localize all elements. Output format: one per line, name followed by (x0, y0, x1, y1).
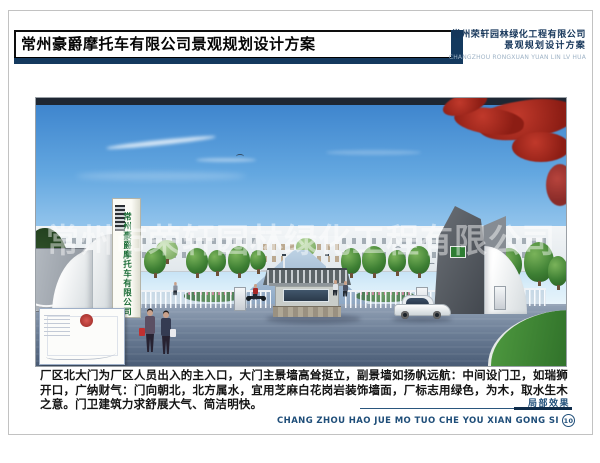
footer-pinyin: CHANG ZHOU HAO JUE MO TUO CHE YOU XIAN G… (277, 414, 575, 427)
design-board-page: 常州豪爵摩托车有限公司景观规划设计方案 常州荣轩园林绿化工程有限公司 景观规划设… (0, 0, 600, 463)
plan-legend-lines (44, 315, 70, 337)
page-number-badge: 10 (562, 414, 575, 427)
figure-head (344, 281, 348, 285)
figure-legs (162, 336, 170, 354)
white-bag (170, 329, 176, 337)
firm-name: 常州荣轩园林绿化工程有限公司 (420, 30, 586, 41)
guard-house-window (283, 289, 329, 302)
caption-rule (360, 408, 572, 409)
figure-torso (343, 285, 348, 291)
plan-road-curve (46, 345, 116, 360)
cloud (196, 158, 256, 162)
gate-pillar (234, 287, 246, 311)
footer-pinyin-text: CHANG ZHOU HAO JUE MO TUO CHE YOU XIAN G… (277, 416, 559, 426)
figure-head (334, 280, 338, 284)
gate-pillar (494, 286, 506, 310)
cloud (326, 150, 421, 155)
car-wheel (433, 311, 441, 319)
fence-left (140, 290, 271, 308)
figure-torso (173, 285, 177, 290)
car-shadow (392, 317, 452, 322)
bird-icon (236, 154, 244, 159)
figure-torso (253, 288, 258, 294)
figure-head (254, 284, 258, 288)
figure-torso (333, 284, 338, 290)
car-wheel (401, 311, 409, 319)
site-plan-inset (39, 308, 125, 365)
red-bag (139, 328, 145, 336)
firm-block: 常州荣轩园林绿化工程有限公司 景观规划设计方案 CHANGZHOU RONGXU… (420, 30, 586, 61)
cloud (106, 134, 216, 150)
firm-subtitle: 景观规划设计方案 (420, 41, 586, 52)
figure-legs (146, 334, 154, 352)
guard-house-base (273, 306, 341, 317)
watermark-text: 常州市荣轩园林绿化工程有限公司 (36, 214, 566, 262)
design-description: 厂区北大门为厂区人员出入的主入口，大门主景墙高耸挺立，副景墙如扬帆远航：中间设门… (40, 368, 568, 412)
maple-foliage (546, 164, 567, 206)
page-title: 常州豪爵摩托车有限公司景观规划设计方案 (14, 30, 459, 59)
bird-icon (429, 263, 435, 267)
red-stamp (80, 314, 93, 327)
firm-pinyin: CHANGZHOU RONGXUAN YUAN LIN LV HUA (420, 54, 586, 61)
title-underline-bar (14, 57, 463, 64)
walking-woman (144, 310, 156, 354)
maple-foliage (512, 132, 567, 162)
white-car (394, 295, 450, 319)
figure-torso (145, 316, 155, 334)
cloud (76, 172, 246, 180)
walking-woman (160, 312, 172, 354)
rendering-image: 常州豪爵摩托车有限公司 (35, 97, 567, 367)
